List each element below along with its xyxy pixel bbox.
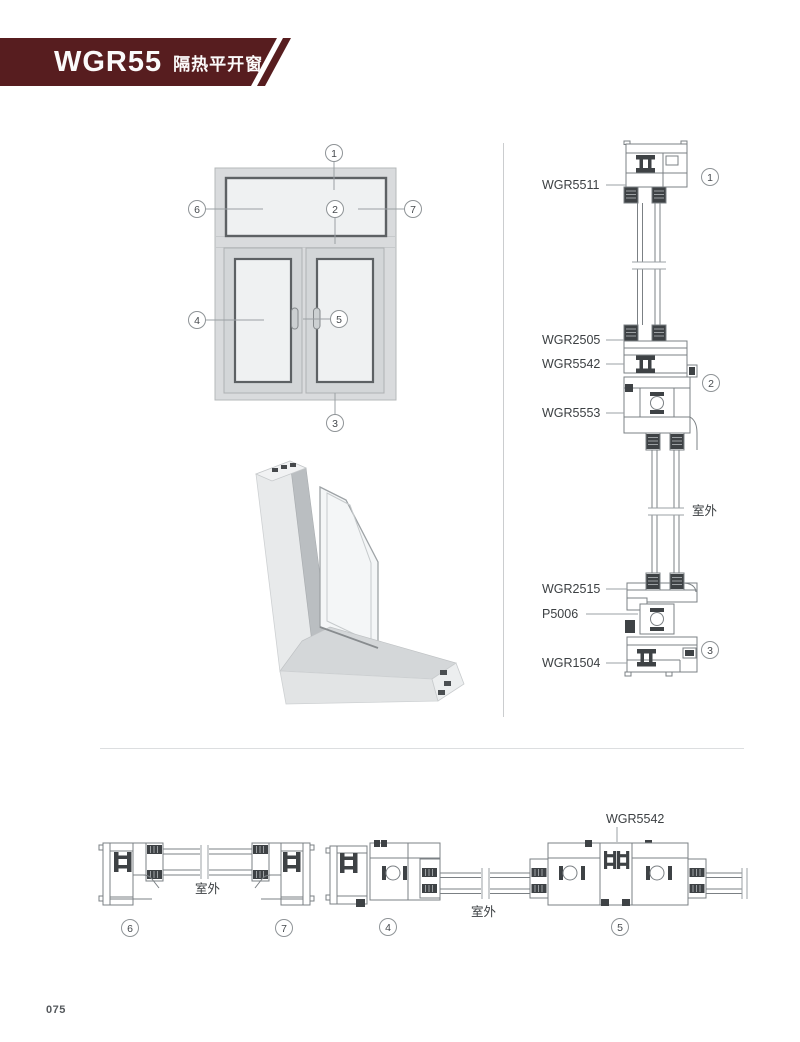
- part-label-wgr5511: WGR5511: [542, 178, 599, 192]
- technical-drawing: 1 2 6 7 4 5 3: [0, 0, 800, 1042]
- callout-number: 7: [281, 923, 287, 935]
- part-label-wgr5542-bottom: WGR5542: [606, 812, 664, 826]
- part-label-wgr1504: WGR1504: [542, 656, 600, 670]
- callout-number: 1: [707, 172, 713, 184]
- page-number: 075: [46, 1004, 66, 1016]
- part-label-wgr2505: WGR2505: [542, 333, 600, 347]
- outdoor-label: 室外: [195, 881, 221, 896]
- fixed-horizontal-section: 室外 6 7: [99, 843, 314, 937]
- callout-number: 3: [332, 418, 338, 430]
- callout-number: 4: [194, 315, 200, 327]
- callout-number: 4: [385, 922, 391, 934]
- callout-number: 6: [127, 923, 133, 935]
- callout-number: 6: [194, 204, 200, 216]
- callout-number: 2: [708, 378, 714, 390]
- vertical-section-drawing: WGR5511 WGR2505 WGR5542 WGR5553 WGR2515 …: [542, 141, 720, 676]
- part-label-p5006: P5006: [542, 607, 578, 621]
- window-elevation: 1 2 6 7 4 5 3: [189, 145, 422, 432]
- part-label-wgr2515: WGR2515: [542, 582, 600, 596]
- outdoor-label: 室外: [471, 904, 497, 919]
- left-handle: [292, 308, 299, 329]
- outdoor-label: 室外: [692, 503, 718, 518]
- callout-number: 7: [410, 204, 416, 216]
- part-label-wgr5542: WGR5542: [542, 357, 600, 371]
- callout-number: 5: [617, 922, 623, 934]
- catalog-page: { "header": { "series": "WGR55", "subtit…: [0, 0, 800, 1042]
- profile-3d-render: [256, 461, 464, 704]
- callout-number: 5: [336, 314, 342, 326]
- fixed-pane: [226, 178, 386, 236]
- callout-number: 2: [332, 204, 338, 216]
- casement-horizontal-section: 室外 WGR5542 4 5: [326, 812, 747, 936]
- callout-number: 1: [331, 148, 337, 160]
- callout-number: 3: [707, 645, 713, 657]
- part-label-wgr5553: WGR5553: [542, 406, 600, 420]
